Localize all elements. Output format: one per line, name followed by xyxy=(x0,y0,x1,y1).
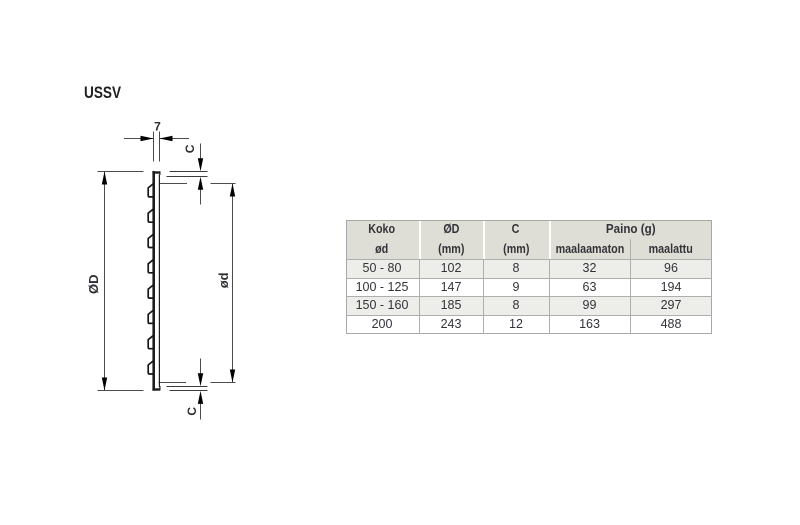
svg-text:C: C xyxy=(185,407,199,416)
svg-text:7: 7 xyxy=(154,119,161,133)
svg-text:ØD: ØD xyxy=(86,275,101,295)
svg-text:C: C xyxy=(183,144,197,153)
svg-text:ød: ød xyxy=(216,272,231,288)
